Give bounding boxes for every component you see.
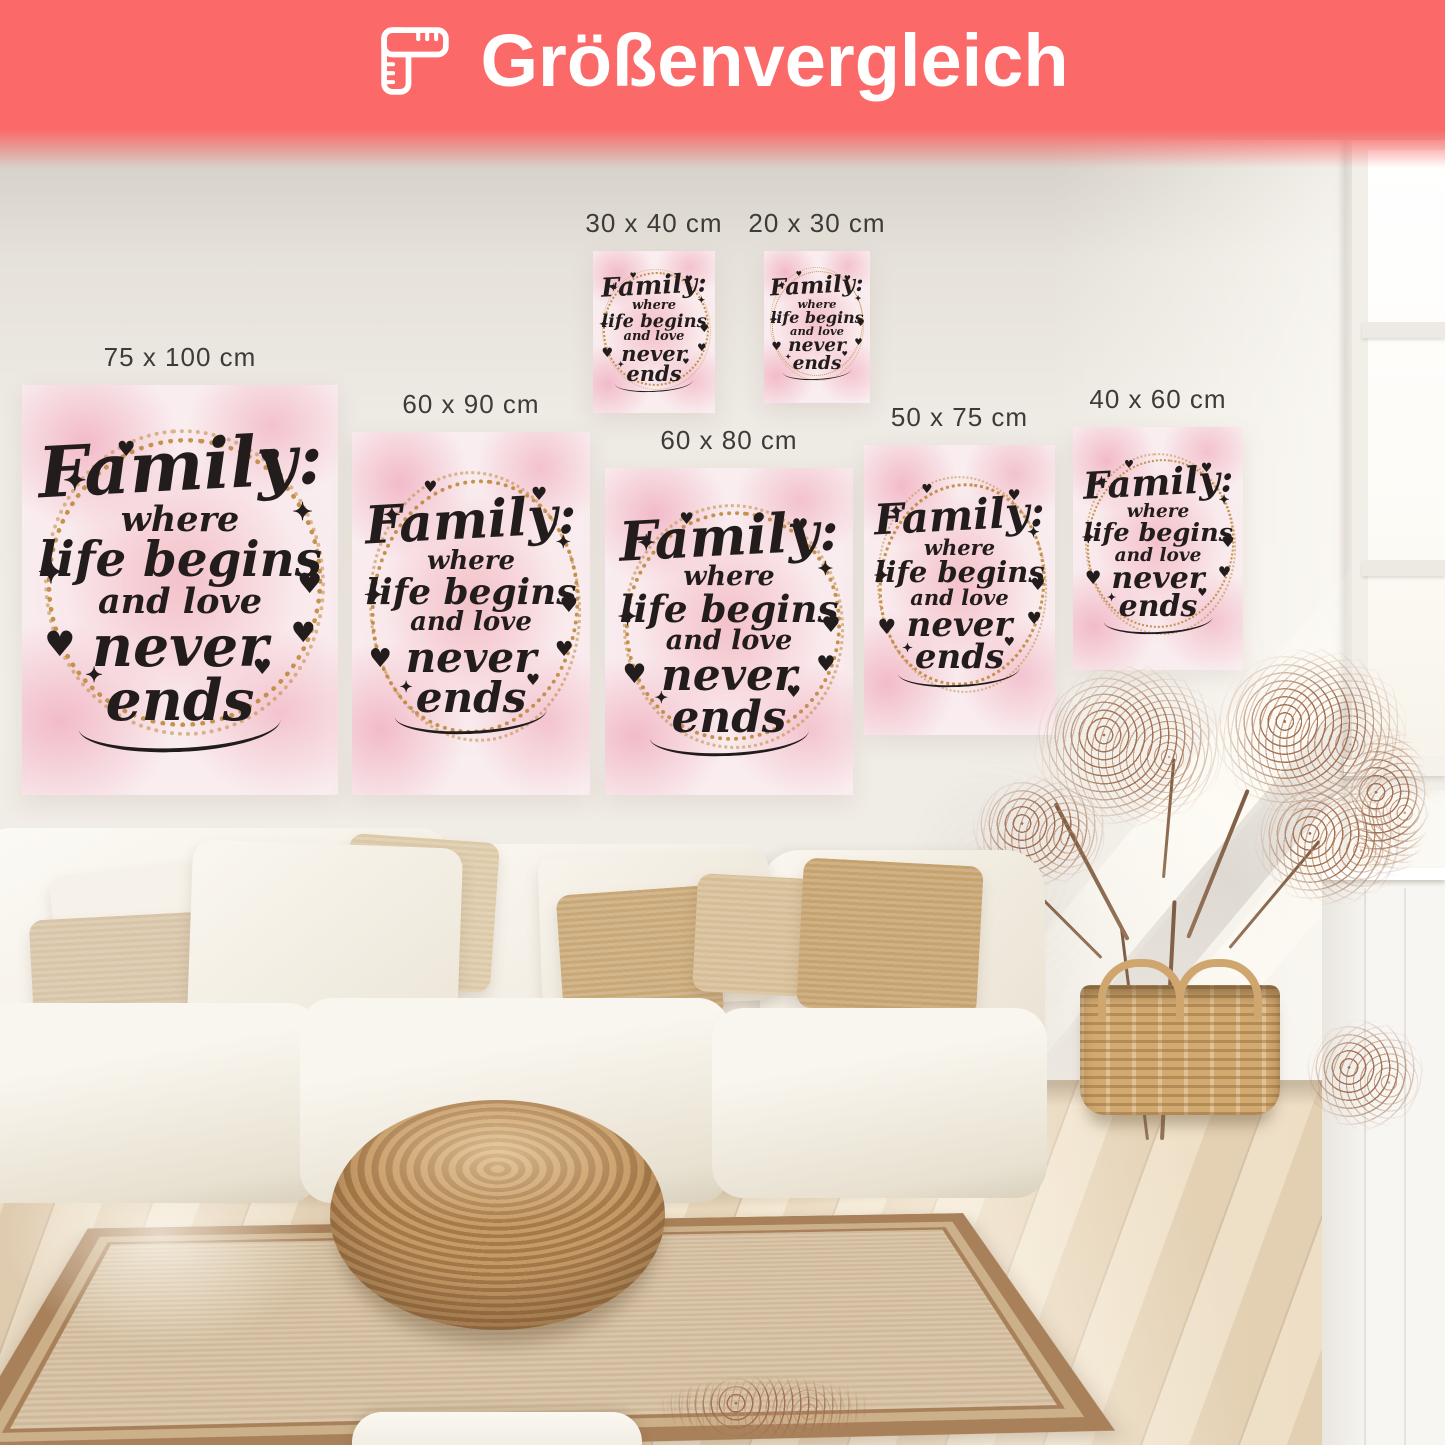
quote-line-family: Family: (873, 492, 1046, 539)
dried-flower-cluster (1285, 1000, 1445, 1150)
white-sideboard (1322, 868, 1445, 1445)
poster-quote: Family: where life begins and love never… (352, 432, 590, 795)
white-floor-cushion (352, 1412, 642, 1445)
dried-flower-cluster (620, 1365, 910, 1445)
poster-size-label: 60 x 80 cm (660, 425, 797, 456)
poster-size-label: 50 x 75 cm (891, 402, 1028, 433)
poster-print: ✦ ♥ ♥ ✦ ✦ ♥ ♥ ♥ ✦ ♥ Family: where life b… (352, 432, 590, 795)
poster-30x40: 30 x 40 cm ✦ ♥ ♥ ✦ ✦ ♥ ♥ ♥ ✦ ♥ Family: w… (593, 251, 715, 413)
underline-flourish (783, 368, 851, 381)
poster-size-label: 75 x 100 cm (104, 342, 257, 373)
quote-line-life-begins: life begins (366, 575, 577, 609)
poster-size-label: 40 x 60 cm (1089, 384, 1226, 415)
sofa-seat-cushion (712, 1008, 1047, 1198)
banner-content: Größenvergleich (376, 20, 1068, 102)
poster-size-label: 20 x 30 cm (748, 208, 885, 239)
quote-line-family: Family: (601, 272, 708, 301)
poster-artwork: ✦ ♥ ♥ ✦ ✦ ♥ ♥ ♥ ✦ ♥ Family: where life b… (605, 468, 853, 795)
poster-60x80: 60 x 80 cm ✦ ♥ ♥ ✦ ✦ ♥ ♥ ♥ ✦ ♥ Family: w… (605, 468, 853, 795)
quote-line-life-begins: life begins (601, 313, 706, 330)
quote-line-never-ends: never ends (1073, 565, 1243, 622)
poster-60x90: 60 x 90 cm ✦ ♥ ♥ ✦ ✦ ♥ ♥ ♥ ✦ ♥ Family: w… (352, 432, 590, 795)
size-comparison-banner: Größenvergleich (0, 0, 1445, 168)
poster-print: ✦ ♥ ♥ ✦ ✦ ♥ ♥ ♥ ✦ ♥ Family: where life b… (593, 251, 715, 413)
quote-line-family: Family: (36, 427, 324, 505)
corner-ruler-icon (376, 20, 454, 102)
poster-artwork: ✦ ♥ ♥ ✦ ✦ ♥ ♥ ♥ ✦ ♥ Family: where life b… (22, 385, 338, 795)
jute-pillow (796, 857, 984, 1016)
poster-size-label: 30 x 40 cm (585, 208, 722, 239)
sofa-seat-cushion (0, 1003, 320, 1203)
quote-line-never-ends: never ends (22, 621, 338, 729)
beige-pillow (692, 873, 813, 997)
poster-quote: Family: where life begins and love never… (22, 385, 338, 795)
poster-20x30: 20 x 30 cm ✦ ♥ ♥ ✦ ✦ ♥ ♥ ♥ ✦ ♥ Family: w… (764, 251, 870, 403)
wicker-pouf (330, 1100, 665, 1330)
quote-line-life-begins: life begins (38, 538, 322, 584)
banner-title: Größenvergleich (480, 24, 1068, 98)
quote-line-family: Family: (364, 492, 578, 550)
size-comparison-scene: 75 x 100 cm ✦ ♥ ♥ ✦ ✦ ♥ ♥ ♥ ✦ ♥ Family: … (0, 0, 1445, 1445)
underline-flourish (615, 379, 693, 394)
poster-quote: Family: where life begins and love never… (764, 251, 870, 403)
quote-line-family: Family: (1082, 462, 1234, 503)
sideboard-seam (1364, 888, 1366, 1445)
poster-artwork: ✦ ♥ ♥ ✦ ✦ ♥ ♥ ♥ ✦ ♥ Family: where life b… (593, 251, 715, 413)
window-crossbar (1362, 322, 1445, 338)
underline-flourish (649, 728, 809, 759)
quote-line-family: Family: (770, 274, 865, 300)
poster-artwork: ✦ ♥ ♥ ✦ ✦ ♥ ♥ ♥ ✦ ♥ Family: where life b… (764, 251, 870, 403)
underline-flourish (394, 706, 547, 736)
quote-line-never-ends: never ends (605, 655, 853, 738)
poster-size-label: 60 x 90 cm (402, 389, 539, 420)
quote-line-family: Family: (618, 506, 840, 566)
quote-line-life-begins: life begins (874, 559, 1044, 587)
quote-line-never-ends: never ends (352, 637, 590, 717)
poster-quote: Family: where life begins and love never… (605, 468, 853, 795)
quote-line-never-ends: never ends (593, 344, 715, 384)
poster-quote: Family: where life begins and love never… (593, 251, 715, 413)
quote-line-life-begins: life begins (1083, 521, 1233, 545)
wicker-basket (1080, 985, 1280, 1115)
window-crossbar (1362, 560, 1445, 576)
poster-print: ✦ ♥ ♥ ✦ ✦ ♥ ♥ ♥ ✦ ♥ Family: where life b… (764, 251, 870, 403)
poster-print: ✦ ♥ ♥ ✦ ✦ ♥ ♥ ♥ ✦ ♥ Family: where life b… (22, 385, 338, 795)
quote-line-life-begins: life begins (620, 592, 839, 627)
poster-print: ✦ ♥ ♥ ✦ ✦ ♥ ♥ ♥ ✦ ♥ Family: where life b… (605, 468, 853, 795)
quote-line-life-begins: life begins (770, 310, 863, 325)
underline-flourish (78, 715, 281, 756)
quote-line-never-ends: never ends (764, 337, 870, 372)
dried-flower-cluster (1330, 700, 1445, 905)
poster-artwork: ✦ ♥ ♥ ✦ ✦ ♥ ♥ ♥ ✦ ♥ Family: where life b… (352, 432, 590, 795)
sideboard-seam (1404, 888, 1406, 1445)
poster-75x100: 75 x 100 cm ✦ ♥ ♥ ✦ ✦ ♥ ♥ ♥ ✦ ♥ Family: … (22, 385, 338, 795)
